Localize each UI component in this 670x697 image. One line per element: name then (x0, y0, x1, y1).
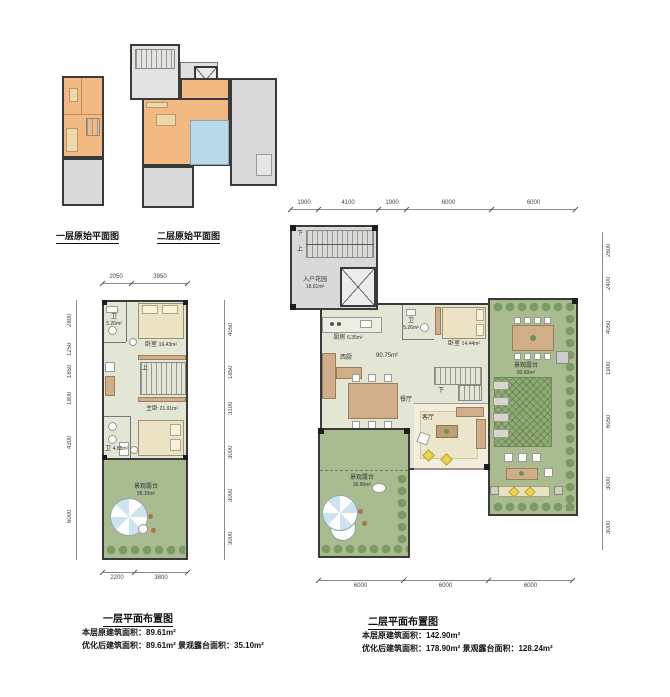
room-name: 卫 (105, 446, 111, 452)
dim-label: 2400 (606, 271, 612, 295)
dim-label: 3000 (606, 515, 612, 539)
room-area: 4.88m² (113, 446, 129, 452)
stair-up-label: 上 (142, 366, 148, 373)
chair (518, 453, 527, 462)
lounge (372, 483, 386, 493)
dim-label: 3950 (132, 274, 188, 280)
sofa (476, 419, 486, 449)
pillow (142, 305, 158, 314)
stool (544, 468, 553, 477)
dim-label: 3100 (228, 396, 234, 420)
room-label-living: 客厅 (422, 415, 434, 422)
caption-original-l2: 二层原始平面图 (157, 229, 220, 244)
dim-label: 3000 (606, 471, 612, 495)
stats-l2-line2: 优化后建筑面积：178.90m² 景观露台面积：128.24m² (362, 643, 553, 654)
hall-area-label: 90.75m² (376, 353, 398, 360)
terrace-divider (320, 470, 408, 471)
room-label-master: 主卧 21.91m² (140, 406, 184, 413)
stove-burner (330, 322, 334, 326)
wall-post (183, 455, 188, 460)
original-l2-room-upper (180, 78, 230, 100)
dim-label: 3000 (228, 440, 234, 464)
window-band (414, 468, 490, 470)
stairs (86, 118, 100, 136)
water-area (190, 120, 229, 165)
caption-layout-l1: 一层平面布置图 (103, 610, 173, 627)
dining-table (348, 383, 398, 419)
plan-layout-l1: 卫 5.26m² 卧室 16.43m² 上 主卧 21.91m² (102, 300, 188, 560)
dim-label: 2800 (67, 308, 73, 332)
dim-label: 3000 (228, 483, 234, 507)
chair (514, 317, 521, 324)
shrub-row (320, 543, 408, 556)
planter (554, 486, 563, 495)
cabinet (146, 102, 168, 108)
dining-table (156, 114, 176, 126)
plan-original-l2 (130, 42, 278, 208)
dim-label: 2200 (100, 575, 134, 581)
dim-tick (185, 281, 191, 287)
dim-tick (573, 207, 579, 213)
toilet (108, 435, 117, 444)
room-area: 36.90m² (353, 482, 371, 488)
dim-label: 4300 (67, 430, 73, 454)
dim-label: 6000 (403, 583, 488, 589)
sink (106, 306, 118, 313)
wardrobe (435, 307, 441, 335)
dim-line (224, 300, 225, 560)
patio-table (138, 524, 148, 534)
dim-label: 1850 (228, 360, 234, 384)
shrub-row (492, 301, 574, 313)
shrub-column (564, 313, 576, 511)
room-name: 景观露台 (134, 484, 158, 490)
shrub-column (396, 473, 408, 545)
room-label-bath2: 卫 4.88m² (105, 446, 119, 453)
dim-label: 4050 (606, 315, 612, 339)
chair (514, 353, 521, 360)
stair-rail (306, 244, 374, 245)
planter (490, 486, 499, 495)
sink (406, 309, 416, 316)
chair (534, 317, 541, 324)
side-table (129, 338, 137, 346)
dim-label: 6000 (491, 200, 576, 206)
room-name: 卫 (111, 314, 117, 320)
cabinet (138, 355, 186, 360)
room-label-bath1: 卫 5.26m² (104, 314, 124, 328)
chair (544, 353, 551, 360)
room-label-kitchen: 厨房 6.35m² (328, 335, 368, 342)
side-table (130, 446, 138, 454)
partition-line (402, 339, 434, 340)
stairs (135, 49, 175, 69)
chair (368, 374, 376, 382)
stats-l1-line1: 本层原建筑面积：89.61m² (82, 627, 176, 638)
room-name: 景观露台 (350, 475, 374, 481)
original-l2-terrace (142, 166, 194, 208)
room-label-bath: 卫 5.26m² (403, 318, 419, 332)
partition-line (81, 78, 82, 114)
stepping-stone (493, 413, 509, 422)
stove-burner (337, 322, 341, 326)
wing-inset (256, 154, 272, 176)
dim-label: 1800 (67, 386, 73, 410)
original-l1-terrace (62, 158, 104, 206)
chair (532, 453, 541, 462)
room-label-dining: 餐厅 (400, 397, 412, 404)
wall-post (404, 428, 410, 434)
grill (556, 351, 569, 364)
shrub-row (492, 501, 574, 514)
room-label-entry-garden: 入户花园 18.61m² (292, 277, 338, 291)
room-area: 21.91m² (160, 406, 178, 412)
sink (360, 320, 372, 328)
dim-label: 2600 (606, 238, 612, 262)
chair (524, 353, 531, 360)
room-name: 卫 (408, 318, 414, 324)
chair (352, 374, 360, 382)
pillow (476, 324, 484, 336)
room-name: 卧室 (448, 341, 460, 347)
dim-label: 1900 (606, 356, 612, 380)
room-area: 90.60m² (517, 370, 535, 376)
stool (358, 509, 363, 514)
dim-line (290, 209, 576, 210)
stepping-stone (493, 381, 509, 390)
chair (534, 353, 541, 360)
wall-post (183, 300, 188, 305)
dim-label: 4100 (318, 200, 378, 206)
room-label-west-kitchen: 西厨 (340, 355, 352, 362)
centerpiece (519, 471, 524, 476)
sink (108, 422, 117, 431)
dim-label: 1250 (67, 337, 73, 361)
room-area: 5.26m² (106, 321, 122, 327)
caption-original-l1: 一层原始平面图 (56, 229, 119, 244)
room-area: 14.44m² (462, 341, 480, 347)
stats-l1-line2: 优化后建筑面积：89.61m² 景观露台面积：35.10m² (82, 640, 264, 651)
room-label-terrace: 景观露台 35.10m² (124, 484, 168, 498)
plant (444, 429, 449, 434)
room-name: 入户花园 (303, 277, 327, 283)
wall-post (318, 428, 324, 434)
shrub-row (105, 544, 185, 557)
caption-layout-l2: 二层平面布置图 (368, 613, 438, 630)
dim-label: 2050 (100, 274, 132, 280)
room-label-bedroom: 卧室 14.44m² (444, 341, 484, 348)
chair (504, 453, 513, 462)
stats-l2-line1: 本层原建筑面积：142.90m² (362, 630, 460, 641)
wall-post (102, 300, 107, 305)
plan-original-l1 (62, 76, 104, 206)
stair-up-label: 上 (297, 247, 303, 254)
room-label-terrace-right: 景观露台 90.60m² (502, 363, 550, 377)
partition-line (64, 114, 102, 115)
stair-down-label: 下 (297, 231, 303, 238)
dim-label: 6050 (606, 409, 612, 433)
pillow (170, 424, 181, 436)
elevator (340, 267, 376, 307)
pillow (162, 305, 178, 314)
room-name: 主卧 (146, 406, 158, 412)
dim-label: 1900 (290, 200, 318, 206)
room-name: 景观露台 (514, 363, 538, 369)
closet (105, 376, 115, 396)
stool (148, 514, 153, 519)
stool (362, 521, 367, 526)
partition-line (104, 342, 126, 343)
wall-post (102, 455, 107, 460)
room-area: 18.61m² (306, 284, 324, 290)
dim-line (102, 572, 188, 573)
sofa (456, 407, 484, 417)
dim-label: 6000 (67, 504, 73, 528)
stepping-stone (493, 429, 509, 438)
room-area: 5.26m² (403, 325, 419, 331)
dim-label: 1900 (378, 200, 406, 206)
patio-umbrella (322, 495, 358, 531)
stairs (458, 385, 482, 401)
partition-line (126, 302, 127, 342)
partition-line (130, 416, 131, 458)
washer (105, 362, 115, 372)
stepping-stone (493, 397, 509, 406)
room-area: 6.35m² (347, 335, 363, 341)
dim-label: 4050 (228, 317, 234, 341)
dim-label: 3000 (228, 526, 234, 550)
pillow (476, 309, 484, 321)
wall-post (372, 225, 378, 231)
dim-line (318, 580, 573, 581)
stairs (434, 367, 482, 385)
room-name: 卧室 (145, 342, 157, 348)
wall-post (572, 298, 578, 304)
stair-down-label: 下 (438, 388, 444, 395)
dim-line (76, 300, 77, 560)
room-label-bedroom1: 卧室 16.43m² (139, 342, 183, 349)
wall-post (484, 464, 490, 470)
floor-plan-sheet: 一层原始平面图 二层原始平面图 卫 5.26m² 卧室 (0, 0, 670, 697)
wall-post (290, 304, 296, 310)
stool (151, 528, 156, 533)
cabinet (138, 397, 186, 402)
chair (524, 317, 531, 324)
plan-layout-l2: 厨房 6.35m² 西厨 餐厅 90.75m² 卫 5.26m² 卧室 (290, 225, 578, 560)
dim-label: 6000 (406, 200, 491, 206)
chair (384, 374, 392, 382)
partition-line (104, 416, 130, 417)
dim-line (102, 283, 188, 284)
dim-label: 1850 (67, 359, 73, 383)
table (69, 88, 78, 102)
centerpiece (530, 335, 536, 341)
pillow (170, 439, 181, 451)
dim-label: 3800 (134, 575, 188, 581)
dim-label: 6000 (318, 583, 403, 589)
sofa (66, 128, 78, 152)
room-area: 35.10m² (137, 491, 155, 497)
dim-line (602, 232, 603, 550)
wall-post (290, 225, 296, 231)
dim-label: 6000 (488, 583, 573, 589)
toilet (420, 323, 429, 332)
room-name: 厨房 (333, 335, 345, 341)
west-kitchen-counter (322, 353, 336, 399)
chair (544, 317, 551, 324)
room-area: 16.43m² (159, 342, 177, 348)
